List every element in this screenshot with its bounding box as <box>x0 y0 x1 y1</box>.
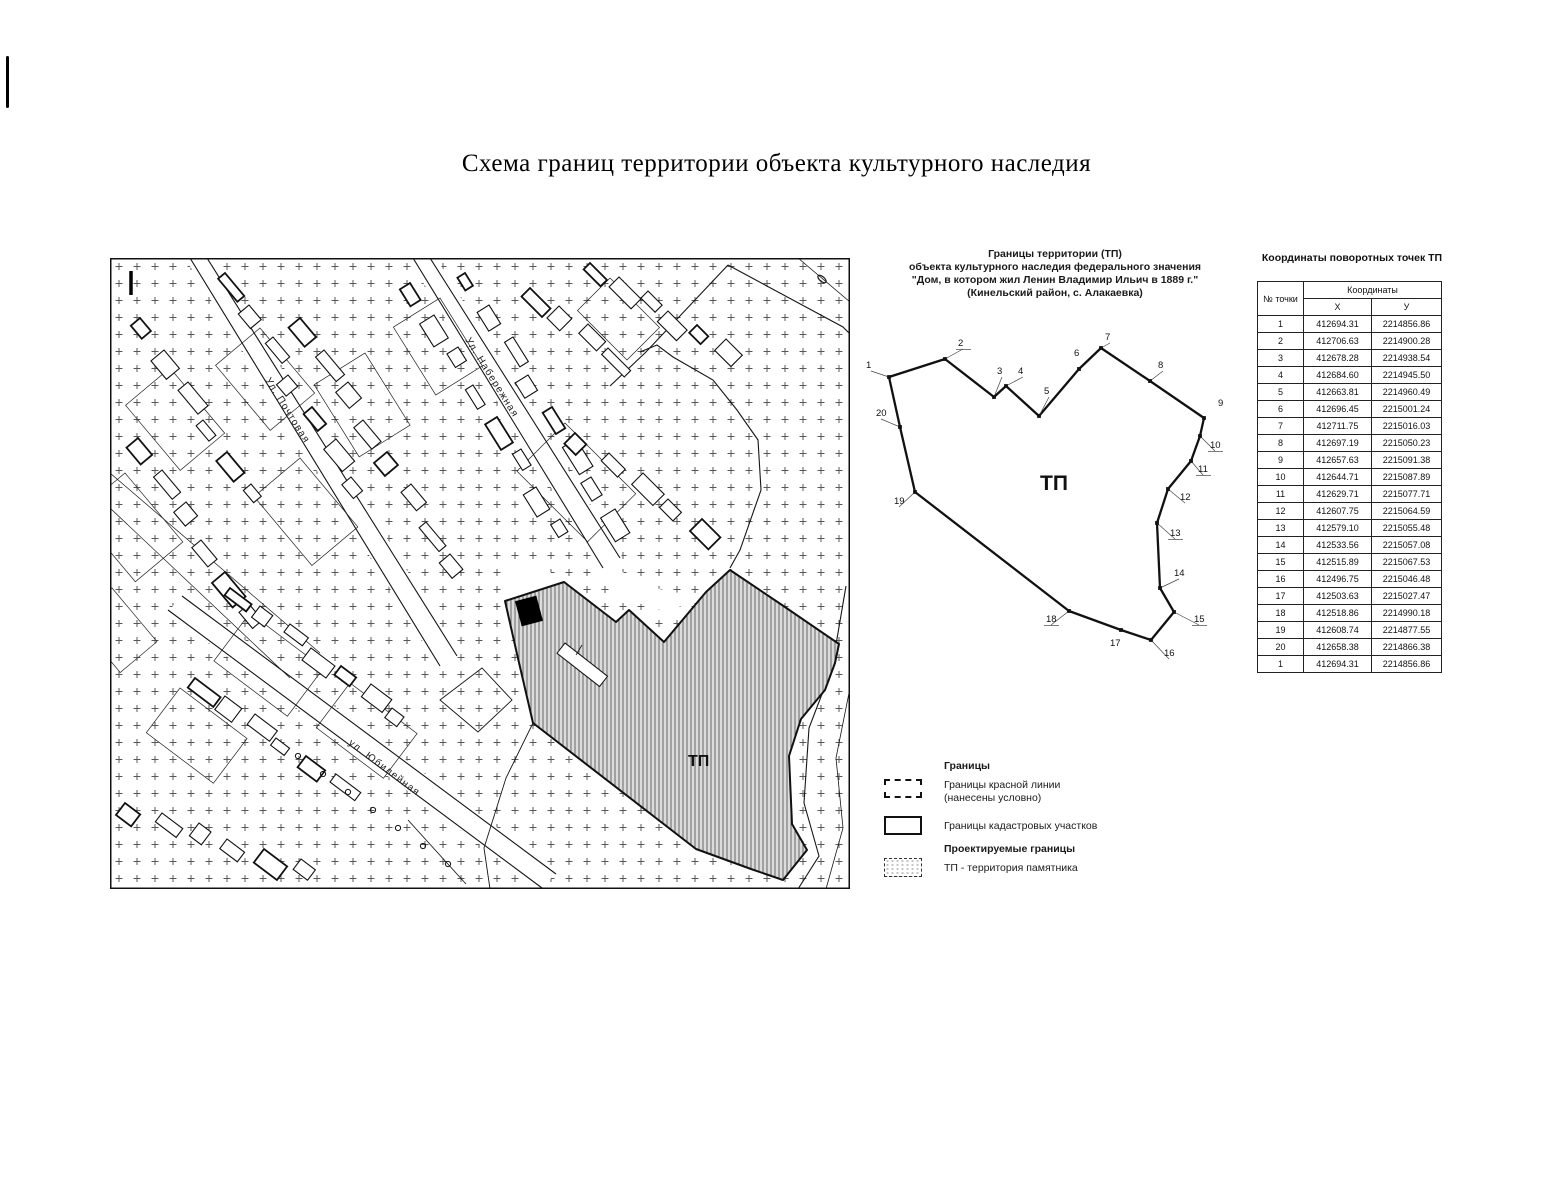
coords-cell: 2215087.89 <box>1372 469 1442 486</box>
diagram-point-label: 11 <box>1198 464 1208 475</box>
legend-cadastral-swatch <box>884 816 922 835</box>
coords-cell: 16 <box>1258 571 1304 588</box>
coords-table: № точки Координаты X У 1412694.312214856… <box>1257 281 1442 673</box>
coords-cell: 2214945.50 <box>1372 367 1442 384</box>
coords-cell: 412518.86 <box>1304 605 1372 622</box>
vertex-dot <box>1067 609 1071 613</box>
diagram-point-label: 14 <box>1174 568 1185 579</box>
vertex-dot <box>1198 434 1202 438</box>
diagram-point-label: 13 <box>1170 528 1181 539</box>
diagram-point-label: 20 <box>876 408 887 419</box>
diagram-territory-label: ТП <box>1040 472 1068 495</box>
coords-cell: 2214877.55 <box>1372 622 1442 639</box>
diagram-header-line: "Дом, в котором жил Ленин Владимир Ильич… <box>855 274 1255 287</box>
coords-cell: 412711.75 <box>1304 418 1372 435</box>
coords-cell: 412515.89 <box>1304 554 1372 571</box>
coords-cell: 3 <box>1258 350 1304 367</box>
territory-diagram: 1234567891011121314151617181920 ТП <box>858 328 1243 676</box>
coords-cell: 6 <box>1258 401 1304 418</box>
coords-row: 9412657.632215091.38 <box>1258 452 1442 469</box>
legend-red-line-swatch <box>884 779 922 798</box>
coords-cell: 15 <box>1258 554 1304 571</box>
coords-cell: 2215055.48 <box>1372 520 1442 537</box>
coords-cell: 412678.28 <box>1304 350 1372 367</box>
diagram-point-label: 2 <box>958 338 963 349</box>
coords-cell: 2215091.38 <box>1372 452 1442 469</box>
coords-cell: 2214866.38 <box>1372 639 1442 656</box>
diagram-point-label: 9 <box>1218 398 1223 409</box>
coords-cell: 412694.31 <box>1304 316 1372 333</box>
coords-cell: 17 <box>1258 588 1304 605</box>
col-header-x: X <box>1304 299 1372 316</box>
coords-row: 13412579.102215055.48 <box>1258 520 1442 537</box>
legend-boundaries-heading: Границы <box>944 760 990 772</box>
document-page: Схема границ территории объекта культурн… <box>0 0 1553 1200</box>
legend-tp-label: ТП - территория памятника <box>944 862 1078 875</box>
coords-cell: 2214900.28 <box>1372 333 1442 350</box>
coords-cell: 412696.45 <box>1304 401 1372 418</box>
coords-cell: 2215077.71 <box>1372 486 1442 503</box>
map-territory-label: ТП <box>688 753 709 770</box>
diagram-geometry: 1234567891011121314151617181920 <box>866 332 1223 659</box>
coords-cell: 2215001.24 <box>1372 401 1442 418</box>
legend-red-line-label-1: Границы красной линии <box>944 779 1060 792</box>
col-header-point: № точки <box>1258 282 1304 316</box>
coords-cell: 2215064.59 <box>1372 503 1442 520</box>
coords-cell: 7 <box>1258 418 1304 435</box>
diagram-point-label: 3 <box>997 366 1002 377</box>
coords-row: 4412684.602214945.50 <box>1258 367 1442 384</box>
coords-row: 18412518.862214990.18 <box>1258 605 1442 622</box>
coords-cell: 2214960.49 <box>1372 384 1442 401</box>
diagram-point-label: 10 <box>1210 440 1221 451</box>
vertex-dot <box>992 395 996 399</box>
coords-cell: 12 <box>1258 503 1304 520</box>
coords-cell: 5 <box>1258 384 1304 401</box>
coords-row: 2412706.632214900.28 <box>1258 333 1442 350</box>
vertex-dot <box>1119 628 1123 632</box>
coords-cell: 412644.71 <box>1304 469 1372 486</box>
coords-cell: 2215067.53 <box>1372 554 1442 571</box>
coords-cell: 1 <box>1258 656 1304 673</box>
cadastral-map: Ул. Набережная Ул. Почтовая ул. Юбилейна… <box>110 258 850 889</box>
vertex-dot <box>1099 346 1103 350</box>
coords-row: 12412607.752215064.59 <box>1258 503 1442 520</box>
coords-cell: 2215050.23 <box>1372 435 1442 452</box>
coords-cell: 2214856.86 <box>1372 656 1442 673</box>
legend-red-line-label-2: (нанесены условно) <box>944 792 1060 805</box>
diagram-point-label: 4 <box>1018 366 1023 377</box>
coords-table-title: Координаты поворотных точек ТП <box>1252 252 1452 264</box>
coords-cell: 18 <box>1258 605 1304 622</box>
vertex-dot <box>1148 379 1152 383</box>
diagram-point-label: 15 <box>1194 614 1205 625</box>
coords-cell: 412533.56 <box>1304 537 1372 554</box>
vertex-dot <box>1202 416 1206 420</box>
vertex-dot <box>887 375 891 379</box>
vertex-dot <box>1189 459 1193 463</box>
diagram-point-label: 8 <box>1158 360 1163 371</box>
coords-row: 15412515.892215067.53 <box>1258 554 1442 571</box>
coords-cell: 412684.60 <box>1304 367 1372 384</box>
coords-cell: 412697.19 <box>1304 435 1372 452</box>
diagram-point-label: 12 <box>1180 492 1191 503</box>
coords-cell: 412657.63 <box>1304 452 1372 469</box>
coords-cell: 10 <box>1258 469 1304 486</box>
scan-artifact <box>6 56 9 108</box>
coords-cell: 20 <box>1258 639 1304 656</box>
coords-cell: 1 <box>1258 316 1304 333</box>
coords-cell: 2215016.03 <box>1372 418 1442 435</box>
diagram-header: Границы территории (ТП) объекта культурн… <box>855 248 1255 300</box>
diagram-point-label: 17 <box>1110 638 1121 649</box>
coords-cell: 412579.10 <box>1304 520 1372 537</box>
vertex-dot <box>913 490 917 494</box>
page-title: Схема границ территории объекта культурн… <box>0 150 1553 178</box>
coords-cell: 2215057.08 <box>1372 537 1442 554</box>
coords-cell: 412503.63 <box>1304 588 1372 605</box>
col-header-y: У <box>1372 299 1442 316</box>
coords-row: 16412496.752215046.48 <box>1258 571 1442 588</box>
vertex-dot <box>898 425 902 429</box>
diagram-header-line: Границы территории (ТП) <box>855 248 1255 261</box>
coords-cell: 412663.81 <box>1304 384 1372 401</box>
coords-cell: 2214990.18 <box>1372 605 1442 622</box>
diagram-point-label: 5 <box>1044 386 1049 397</box>
coords-cell: 19 <box>1258 622 1304 639</box>
diagram-point-label: 16 <box>1164 648 1175 659</box>
coords-row: 17412503.632215027.47 <box>1258 588 1442 605</box>
coords-cell: 13 <box>1258 520 1304 537</box>
coords-cell: 2214856.86 <box>1372 316 1442 333</box>
coords-cell: 412607.75 <box>1304 503 1372 520</box>
vertex-dot <box>1077 367 1081 371</box>
coords-row: 1412694.312214856.86 <box>1258 656 1442 673</box>
coords-cell: 412706.63 <box>1304 333 1372 350</box>
vertex-dot <box>1172 610 1176 614</box>
coords-cell: 2214938.54 <box>1372 350 1442 367</box>
coords-row: 19412608.742214877.55 <box>1258 622 1442 639</box>
vertex-dot <box>1004 384 1008 388</box>
diagram-header-line: (Кинельский район, с. Алакаевка) <box>855 287 1255 300</box>
diagram-point-label: 1 <box>866 360 871 371</box>
coords-cell: 2 <box>1258 333 1304 350</box>
diagram-point-label: 19 <box>894 496 905 507</box>
coords-table-body: 1412694.312214856.862412706.632214900.28… <box>1258 316 1442 673</box>
coords-cell: 2215046.48 <box>1372 571 1442 588</box>
vertex-dot <box>1158 586 1162 590</box>
coords-cell: 2215027.47 <box>1372 588 1442 605</box>
coords-cell: 4 <box>1258 367 1304 384</box>
coords-cell: 412658.38 <box>1304 639 1372 656</box>
coords-row: 7412711.752215016.03 <box>1258 418 1442 435</box>
legend-projected-heading: Проектируемые границы <box>944 843 1075 855</box>
coords-row: 14412533.562215057.08 <box>1258 537 1442 554</box>
coords-cell: 412694.31 <box>1304 656 1372 673</box>
coords-cell: 412496.75 <box>1304 571 1372 588</box>
vertex-dot <box>1149 638 1153 642</box>
legend-tp-swatch <box>884 858 922 877</box>
coords-cell: 11 <box>1258 486 1304 503</box>
coords-row: 1412694.312214856.86 <box>1258 316 1442 333</box>
diagram-header-line: объекта культурного наследия федеральног… <box>855 261 1255 274</box>
col-header-coords: Координаты <box>1304 282 1442 299</box>
diagram-point-label: 18 <box>1046 614 1057 625</box>
coords-row: 3412678.282214938.54 <box>1258 350 1442 367</box>
legend-cadastral-label: Границы кадастровых участков <box>944 820 1097 833</box>
coords-cell: 412608.74 <box>1304 622 1372 639</box>
coords-cell: 14 <box>1258 537 1304 554</box>
coords-row: 6412696.452215001.24 <box>1258 401 1442 418</box>
coords-cell: 9 <box>1258 452 1304 469</box>
vertex-dot <box>943 357 947 361</box>
vertex-dot <box>1166 487 1170 491</box>
diagram-point-label: 7 <box>1105 332 1110 343</box>
coords-row: 11412629.712215077.71 <box>1258 486 1442 503</box>
coords-cell: 8 <box>1258 435 1304 452</box>
vertex-dot <box>1037 414 1041 418</box>
vertex-dot <box>1155 521 1159 525</box>
coords-row: 20412658.382214866.38 <box>1258 639 1442 656</box>
coords-cell: 412629.71 <box>1304 486 1372 503</box>
coords-row: 10412644.712215087.89 <box>1258 469 1442 486</box>
coords-row: 8412697.192215050.23 <box>1258 435 1442 452</box>
legend-red-line-label: Границы красной линии (нанесены условно) <box>944 779 1060 804</box>
diagram-point-label: 6 <box>1074 348 1079 359</box>
coords-row: 5412663.812214960.49 <box>1258 384 1442 401</box>
